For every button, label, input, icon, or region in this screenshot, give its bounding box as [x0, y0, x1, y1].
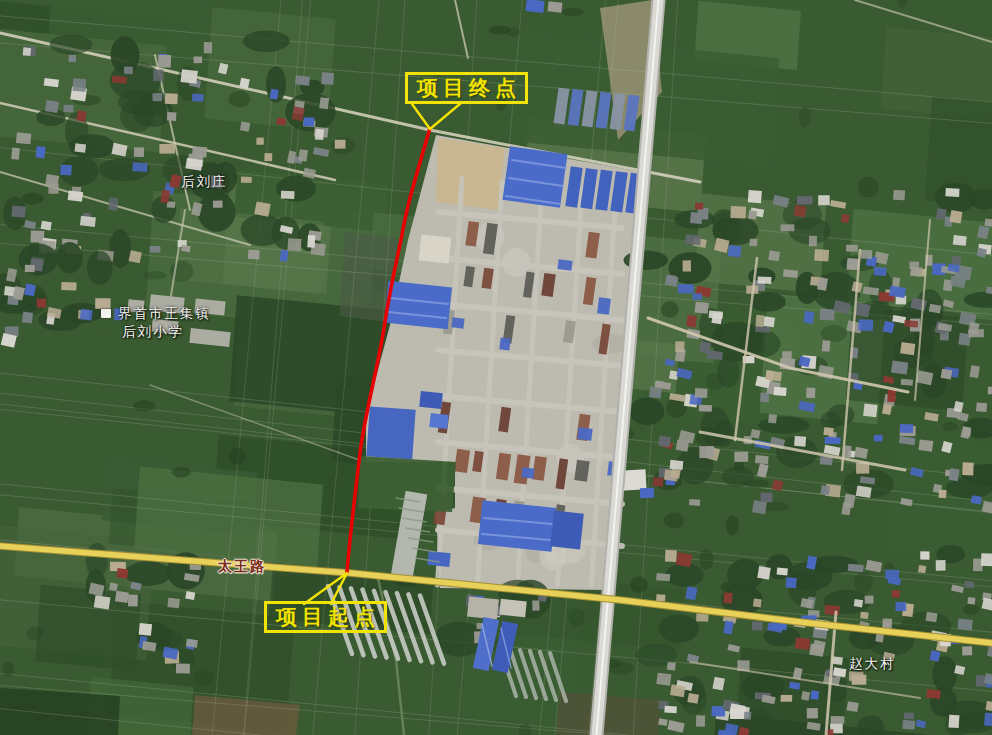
- satellite-imagery: [0, 0, 992, 735]
- satellite-map-view: 项目终点 项目起点 后刘庄 界首市王集镇 后刘小学 赵大村 太王路: [0, 0, 992, 735]
